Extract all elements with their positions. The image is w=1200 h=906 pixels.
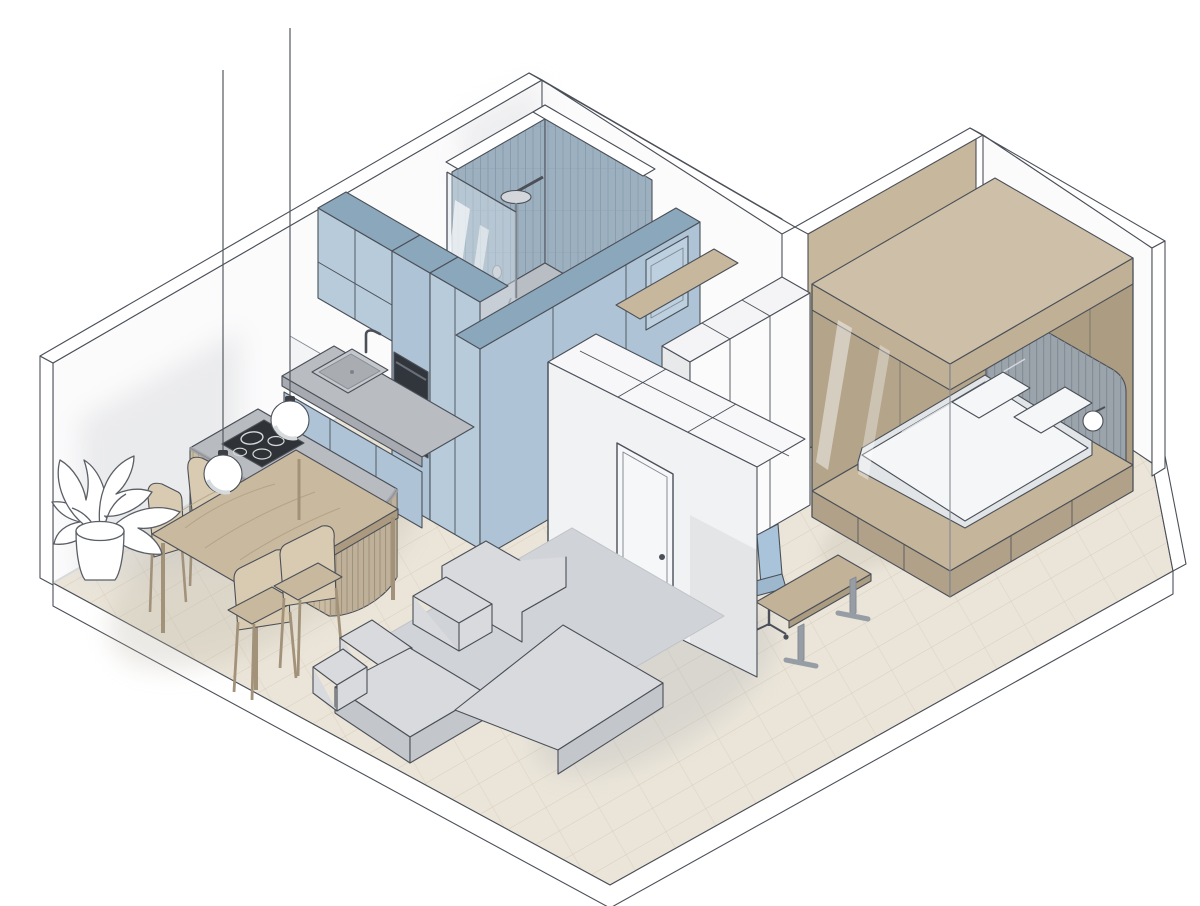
apartment-isometric-render xyxy=(0,0,1200,906)
desk-leg-2 xyxy=(850,577,856,616)
pendant-globe-2 xyxy=(271,401,309,439)
plant-pot xyxy=(76,522,124,581)
desk-leg-1 xyxy=(798,624,804,663)
floorplan-svg xyxy=(0,0,1200,906)
chair-3-leg-c xyxy=(252,624,254,700)
right-wall-cut-edge xyxy=(1152,241,1165,476)
left-wall-outer-edge xyxy=(40,356,53,585)
caster-2 xyxy=(783,634,788,639)
pendant-globe-1 xyxy=(204,455,242,493)
chair-4-leg-c xyxy=(298,600,300,676)
door-handle xyxy=(659,554,665,560)
rain-shower-head-icon xyxy=(501,191,531,204)
sconce-2 xyxy=(1083,411,1103,431)
sink-drain xyxy=(350,370,354,374)
